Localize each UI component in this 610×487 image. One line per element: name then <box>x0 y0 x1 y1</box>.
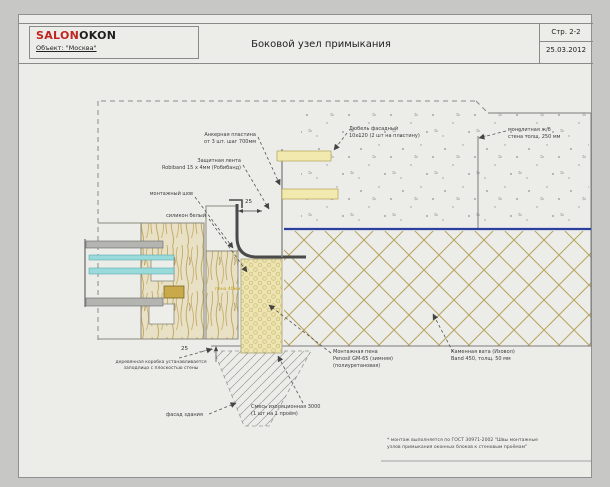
callout-line: Анкерная пластина <box>166 132 256 139</box>
callout-line: (1 шт на 1 проём) <box>251 411 361 418</box>
foam-inline-label: пена 40мм <box>215 287 240 292</box>
logo-part-okon: OKON <box>79 29 116 42</box>
callout-line: Band 450, толщ. 50 мм <box>451 356 566 363</box>
callout-line: стена толщ. 250 мм <box>508 134 593 141</box>
sheet-date: 25.03.2012 <box>539 46 593 54</box>
page-number: Стр. 2-2 <box>539 28 593 36</box>
callout-mounting-seam: монтажный шов <box>118 191 193 198</box>
callout-facade: фасад здания <box>166 412 226 419</box>
sheet-title: Боковой узел примыкания <box>119 39 523 50</box>
footnote-line: узлов примыкания оконных блоков к стенов… <box>387 445 589 452</box>
callout-line: Защитная лента <box>146 158 241 165</box>
callout-line: Penosil GM-65 (зимняя) <box>333 356 448 363</box>
masonry-wall-region <box>284 231 591 346</box>
callout-line: Robiband 15 х 4мм (Робибанд) <box>146 165 241 172</box>
logo-part-salon: SALON <box>36 29 79 42</box>
gost-footnote: * монтаж выполняется по ГОСТ 30971-2002 … <box>387 438 589 451</box>
drawing-sheet: SALONOKON Объект: "Москва" Боковой узел … <box>18 14 592 478</box>
callout-line: Смесь изоляционная 3000 <box>251 404 361 411</box>
dimension-top: 25 <box>245 199 252 205</box>
callout-line: Дюбель фасадный <box>349 126 454 133</box>
callout-line: монтажный шов <box>118 191 193 198</box>
footnote-line: * монтаж выполняется по ГОСТ 30971-2002 … <box>387 438 589 445</box>
callout-concrete-wall: монолитная ж/б стена толщ. 250 мм <box>508 127 593 141</box>
mounting-foam <box>241 259 282 353</box>
callout-line: монолитная ж/б <box>508 127 593 134</box>
header-bottom-rule <box>19 63 593 64</box>
callout-line: заподлицо с плоскостью стены <box>96 366 226 372</box>
callout-mounting-foam: Монтажная пена Penosil GM-65 (зимняя) (п… <box>333 349 448 369</box>
callout-line: Каменная вата (Изовол) <box>451 349 566 356</box>
callout-line: от 3 шт. шаг 700мм <box>166 139 256 146</box>
callout-insulating-mix: Смесь изоляционная 3000 (1 шт на 1 проём… <box>251 404 361 418</box>
callout-mineral-wool: Каменная вата (Изовол) Band 450, толщ. 5… <box>451 349 566 363</box>
header-cell-rule <box>539 41 593 42</box>
anchor-plate-1 <box>277 151 331 161</box>
callout-line: Монтажная пена <box>333 349 448 356</box>
callout-frame-note: деревянная коробка устанавливается запод… <box>96 360 226 372</box>
callout-line: силикон белый <box>131 213 206 220</box>
callout-line: фасад здания <box>166 412 226 419</box>
callout-line: (полиуретановая) <box>333 363 448 370</box>
callout-facade-dowel: Дюбель фасадный 10х120 (2 шт на пластину… <box>349 126 454 140</box>
anchor-plate-2 <box>282 189 338 199</box>
callout-anchor-plate: Анкерная пластина от 3 шт. шаг 700мм <box>166 132 256 146</box>
header-top-rule <box>19 23 593 24</box>
dimension-bottom: 25 <box>181 346 188 352</box>
callout-silicone: силикон белый <box>131 213 206 220</box>
callout-line: 10х120 (2 шт на пластину) <box>349 133 454 140</box>
callout-protective-tape: Защитная лента Robiband 15 х 4мм (Робиба… <box>146 158 241 172</box>
